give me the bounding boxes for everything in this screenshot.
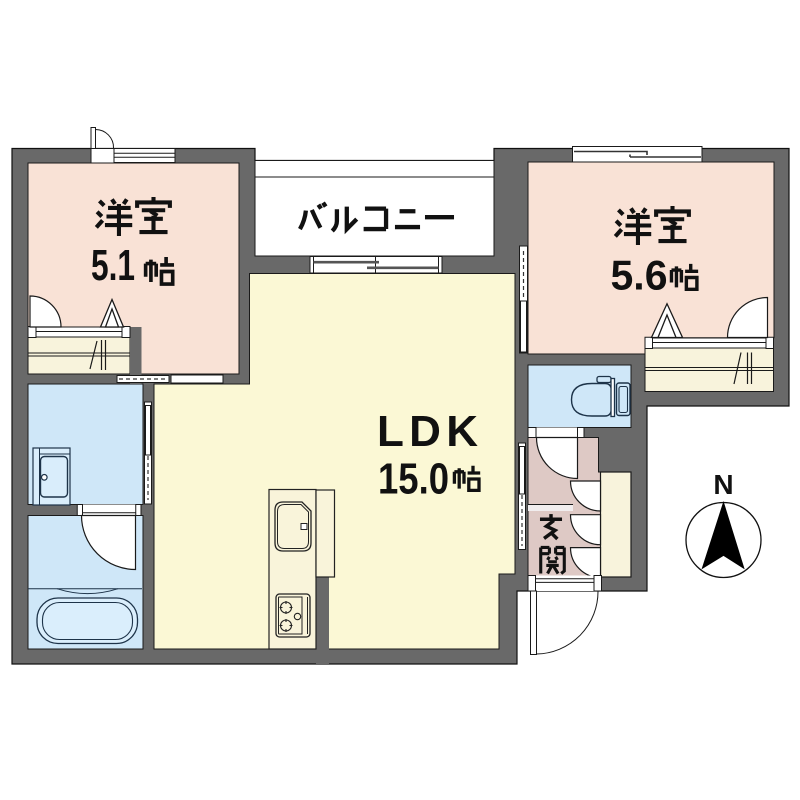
svg-text:5.6: 5.6 (611, 252, 668, 299)
svg-text:LDK: LDK (377, 407, 478, 456)
svg-text:N: N (713, 469, 733, 500)
svg-text:15.0: 15.0 (378, 455, 449, 504)
svg-text:5.1: 5.1 (91, 241, 135, 290)
